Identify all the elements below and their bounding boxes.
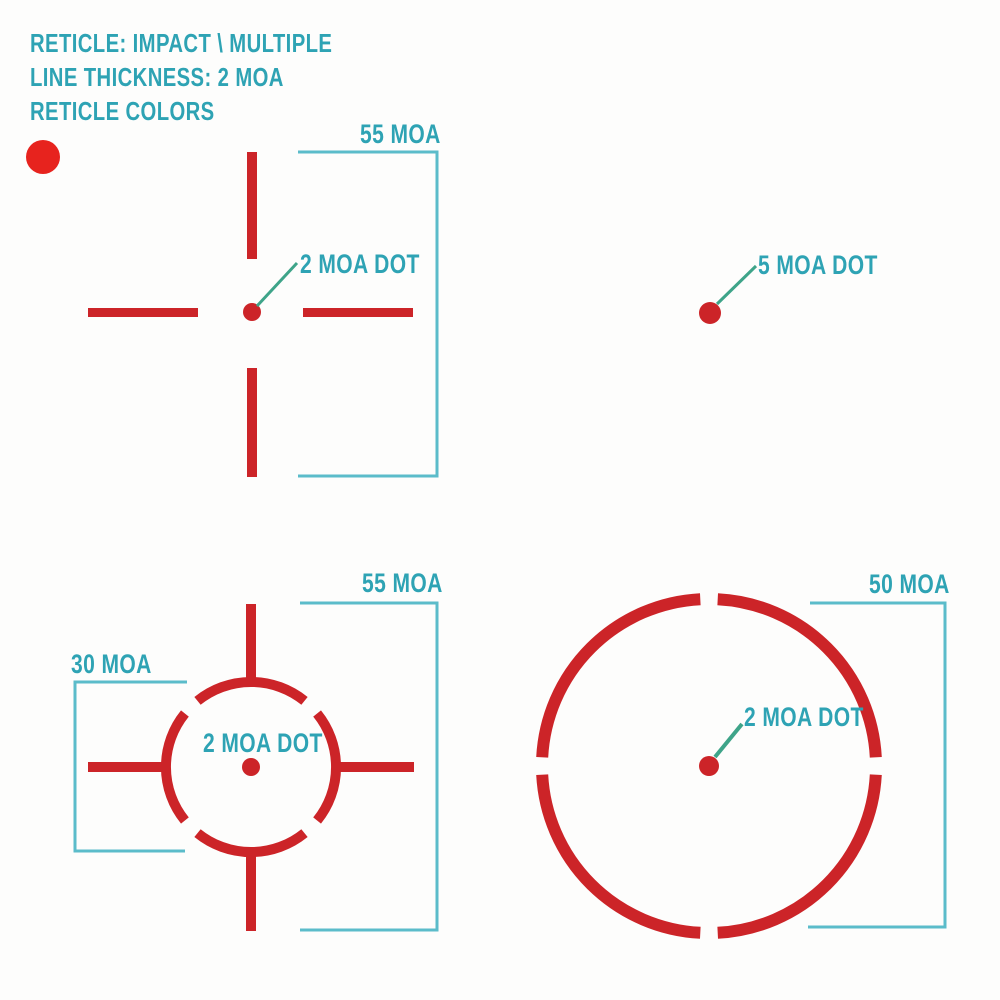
crosshair-dot-label: 2 MOA DOT [300, 250, 420, 278]
five-moa-dot-label: 5 MOA DOT [758, 251, 878, 279]
crosshair-top-line [247, 152, 257, 259]
header-reticle-colors: RETICLE COLORS [30, 98, 215, 125]
reticle-crosshair-group [88, 152, 437, 477]
circle-crosshair-right-line [336, 762, 414, 772]
circle-crosshair-arc-bottom [198, 833, 305, 852]
circle-arc-nw [542, 599, 700, 757]
crosshair-55moa-label: 55 MOA [360, 120, 441, 148]
circle-crosshair-arc-left [166, 714, 185, 821]
circle-arc-ne [718, 599, 876, 757]
circle-center-dot [699, 756, 719, 776]
circle-50moa-label: 50 MOA [869, 570, 950, 598]
reticle-dot-group [699, 266, 756, 324]
reticle-spec-diagram: RETICLE: IMPACT \ MULTIPLE LINE THICKNES… [0, 0, 1000, 1000]
circle-dot-leader-line [715, 724, 742, 757]
five-moa-dot-leader-line [717, 266, 756, 304]
circle-crosshair-30moa-label: 30 MOA [71, 650, 152, 678]
crosshair-dot-leader-line [257, 263, 297, 306]
crosshair-right-line [303, 308, 413, 317]
circle-crosshair-55moa-label: 55 MOA [362, 569, 443, 597]
reticle-color-swatch-red [26, 140, 60, 174]
circle-crosshair-center-dot [242, 758, 260, 776]
circle-crosshair-top-line [246, 604, 256, 684]
circle-crosshair-left-line [88, 762, 167, 772]
reticle-circle-dot-group [542, 599, 945, 933]
reticle-geometry [0, 0, 1000, 1000]
circle-arc-se [718, 775, 876, 933]
header-reticle-name: RETICLE: IMPACT \ MULTIPLE [30, 30, 332, 57]
circle-crosshair-bottom-line [246, 848, 256, 931]
crosshair-left-line [88, 308, 198, 317]
circle-crosshair-dot-label: 2 MOA DOT [203, 729, 323, 757]
circle-dot-label: 2 MOA DOT [744, 703, 864, 731]
five-moa-dot [699, 302, 721, 324]
circle-arc-sw [542, 775, 700, 933]
crosshair-bottom-line [247, 368, 257, 477]
circle-crosshair-arc-top [198, 682, 305, 701]
header-line-thickness: LINE THICKNESS: 2 MOA [30, 64, 284, 91]
